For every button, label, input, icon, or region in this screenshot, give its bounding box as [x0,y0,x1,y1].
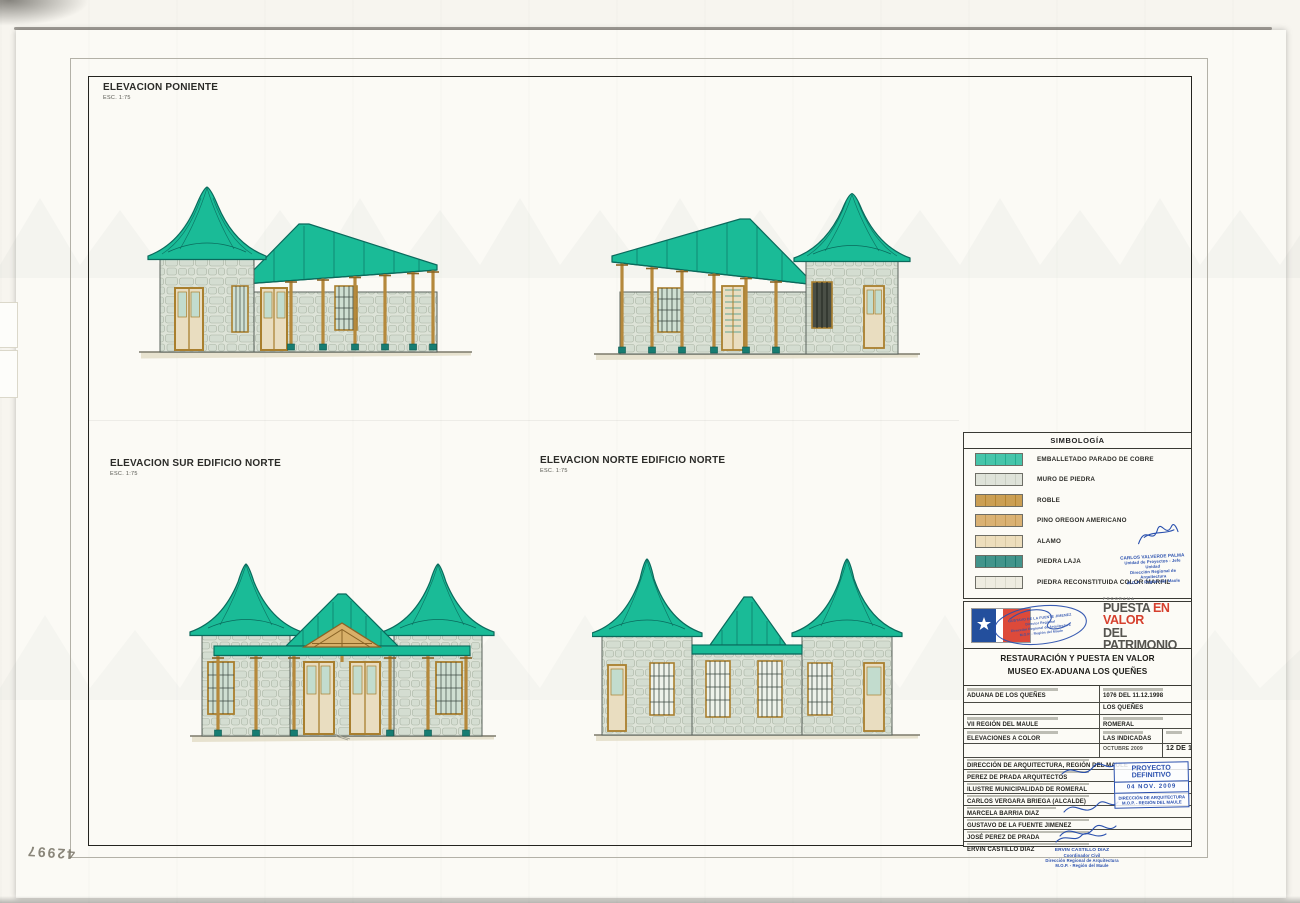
left-tower-window [208,662,234,714]
field-row-content: ELEVACIONES A COLOR LAS INDICADAS [964,729,1191,744]
dark-barred-window [812,282,832,328]
program-header: PROGRAMA PUESTA EN VALOR DEL PATRIMONIO … [964,602,1191,649]
right-tower-door-window [864,663,884,731]
scan-bottom-shadow [0,896,1300,903]
legend-swatch [975,453,1023,466]
terrain [596,354,918,360]
louvered-door [722,286,744,350]
project-title: RESTAURACIÓN Y PUESTA EN VALOR MUSEO EX-… [964,649,1191,686]
barred-window [658,288,682,332]
elevation-title: ELEVACION PONIENTE [103,82,218,93]
legend-swatch [975,555,1023,568]
legend-swatch [975,576,1023,589]
tower-window [864,286,884,348]
elevation-title: ELEVACION NORTE EDIFICIO NORTE [540,455,725,466]
left-edge-tab [0,302,18,348]
elevation-title: ELEVACION SUR EDIFICIO NORTE [110,458,281,469]
elevation-scale: ESC. 1:75 [110,469,281,480]
left-edge-tab [0,350,18,398]
field-row-monument: ADUANA DE LOS QUEÑES 1076 DEL 11.12.1998 [964,686,1191,703]
right-tower-roof [382,564,494,636]
legend-swatch [975,494,1023,507]
left-tower-door [608,665,626,731]
legend-swatch [975,535,1023,548]
window [232,286,248,332]
region: VII REGIÓN DEL MAULE [967,722,1038,728]
signature-squiggle [1052,830,1112,846]
approval-stamp-castillo: ERVIN CASTILLO DIAZ Coordinador Civil Di… [1012,830,1152,868]
signature-squiggle [1131,517,1183,550]
elevation-scale: ESC. 1:75 [103,93,218,104]
title-block: PROGRAMA PUESTA EN VALOR DEL PATRIMONIO … [963,601,1192,847]
scanned-architectural-sheet: ELEVACION PONIENTE ESC. 1:75 ELEVACION S… [0,0,1300,903]
drawing-elevacion-norte [592,545,922,745]
legend-swatch [975,514,1023,527]
legend-item: MURO DE PIEDRA [964,470,1191,491]
date-value: OCTUBRE 2009 [1103,746,1143,752]
right-tower-window [436,662,462,714]
right-tower-roof [792,559,902,637]
right-tower-barred-window [808,663,832,715]
drawing-elevacion-poniente-west [135,182,475,362]
symbology-legend: SIMBOLOGÍA EMBALLETADO PARADO DE COBRE M… [963,432,1192,599]
decree-number: 1076 DEL 11.12.1998 [1103,693,1163,699]
monument-name: ADUANA DE LOS QUEÑES [967,693,1046,699]
double-door-left [304,662,334,734]
center-barred-window-left [706,661,730,717]
left-tower-barred-window [650,663,674,715]
sheet-number: 12 DE 18 [1166,745,1191,752]
comuna: ROMERAL [1103,722,1134,728]
legend-title: SIMBOLOGÍA [964,433,1191,449]
copper-roof [244,224,437,284]
approval-stamp-fuente: GUSTAVO DE LA FUENTE JIMENEZ Director Re… [991,599,1090,641]
tower-door [175,288,203,350]
tower-copper-roof [148,187,266,260]
double-door-right [350,662,380,734]
main-door [261,288,287,350]
center-barred-window-right [758,661,782,717]
program-title: PROGRAMA PUESTA EN VALOR DEL PATRIMONIO [1103,598,1191,652]
tower-copper-roof [794,194,910,262]
drawing-elevacion-poniente-east [592,192,922,362]
handwritten-archive-number: 42997 [26,843,76,862]
drawing-elevacion-sur [188,556,498,746]
field-row-region: VII REGIÓN DEL MAULE ROMERAL [964,715,1191,729]
approval-stamp-valverde: CARLOS VALVERDE PALMA Unidad de Proyecto… [1114,517,1189,586]
label-elevacion-poniente: ELEVACION PONIENTE ESC. 1:75 [103,82,218,104]
left-tower-roof [592,559,702,637]
fold-line [89,420,959,421]
scan-corner-smudge [0,0,90,26]
left-tower-roof [190,564,302,636]
field-row-date-sheet: OCTUBRE 2009 12 DE 18 [964,744,1191,758]
legend-item: EMBALLETADO PARADO DE COBRE [964,449,1191,470]
terrain [596,735,918,741]
label-elevacion-sur: ELEVACION SUR EDIFICIO NORTE ESC. 1:75 [110,458,281,480]
legend-swatch [975,473,1023,486]
proyecto-definitivo-stamp: PROYECTO DEFINITIVO 04 NOV. 2009 DIRECCI… [1114,761,1190,809]
center-gable-roof [692,597,802,654]
field-row-locality: LOS QUEÑES [964,703,1191,715]
label-elevacion-norte: ELEVACION NORTE EDIFICIO NORTE ESC. 1:75 [540,455,725,477]
legend-item: ROBLE [964,490,1191,511]
locality: LOS QUEÑES [1103,705,1143,711]
terrain [141,352,471,359]
scale-value: LAS INDICADAS [1103,736,1151,742]
paper-top-edge [14,27,1272,30]
drawing-content: ELEVACIONES A COLOR [967,736,1040,742]
elevation-scale: ESC. 1:75 [540,466,725,477]
